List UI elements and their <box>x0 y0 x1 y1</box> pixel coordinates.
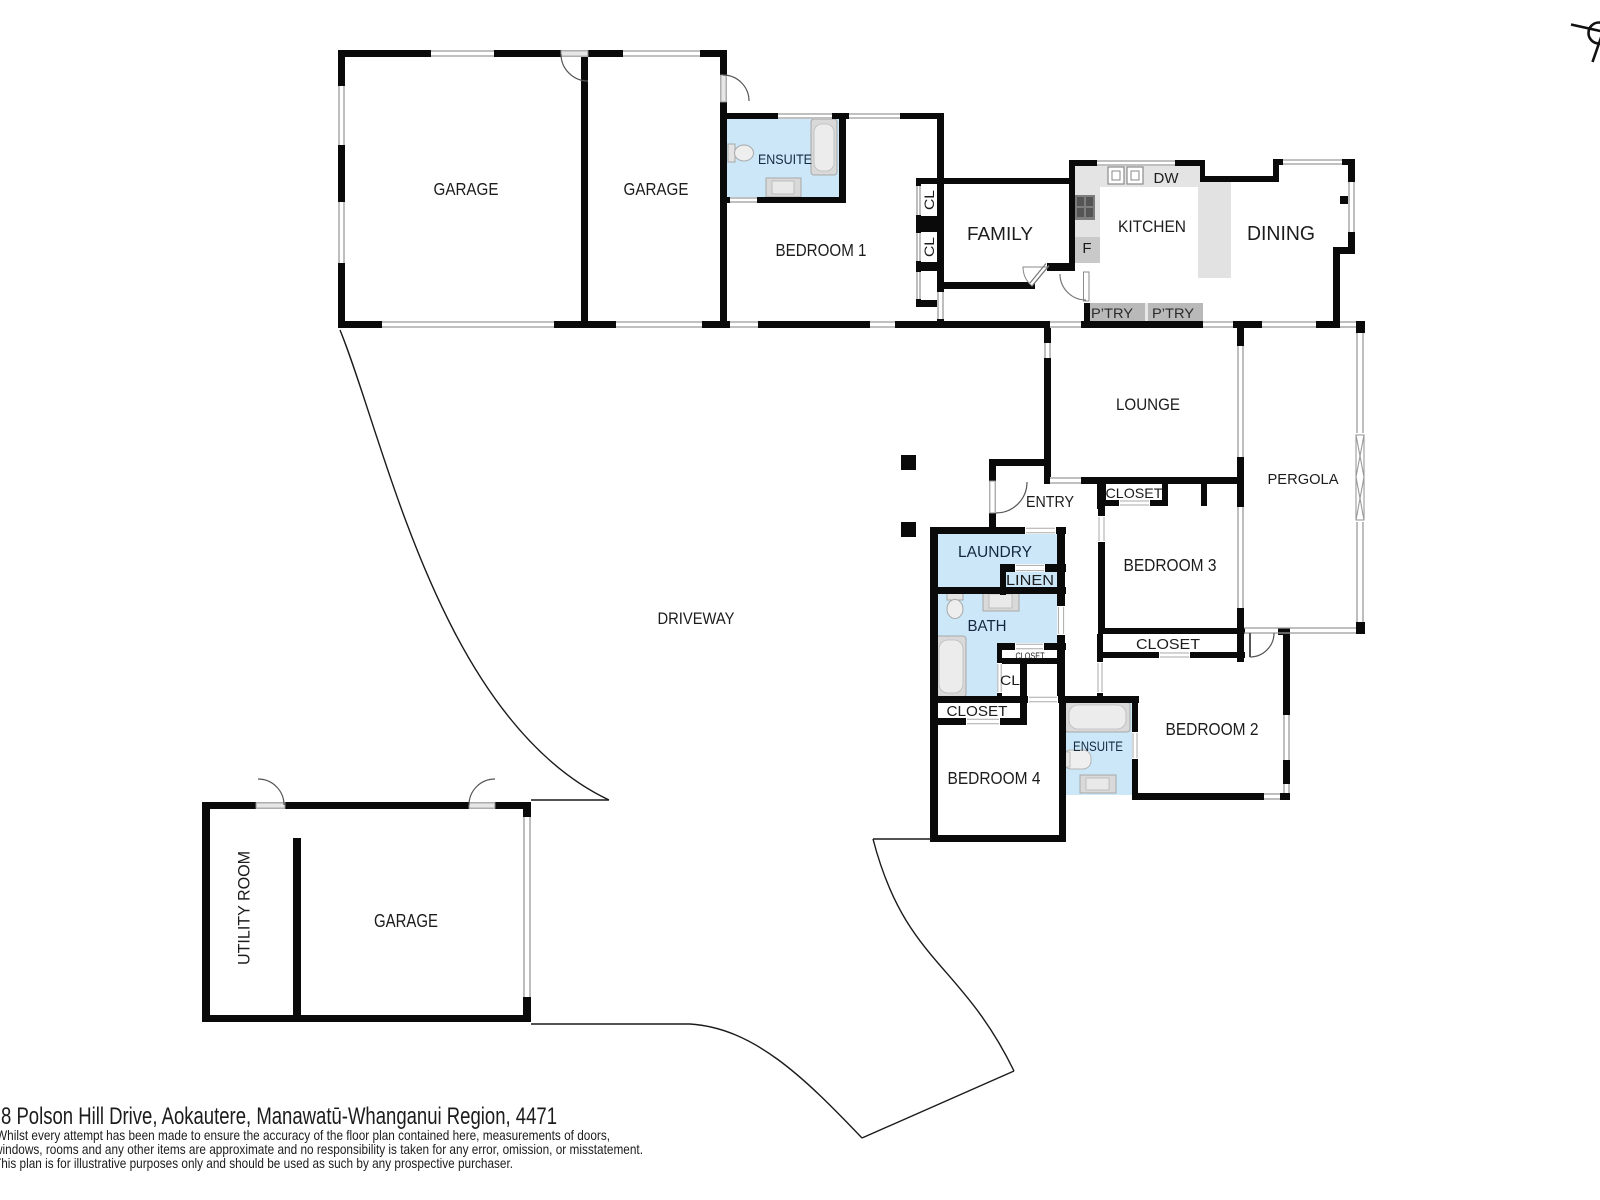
svg-text:GARAGE: GARAGE <box>624 179 689 199</box>
svg-text:BEDROOM 2: BEDROOM 2 <box>1166 719 1259 739</box>
svg-text:ENTRY: ENTRY <box>1026 494 1074 511</box>
svg-text:ENSUITE: ENSUITE <box>758 152 812 167</box>
svg-text:PERGOLA: PERGOLA <box>1268 471 1339 488</box>
svg-text:This plan is for illustrative: This plan is for illustrative purposes o… <box>0 1155 513 1171</box>
svg-text:P’TRY: P’TRY <box>1091 305 1134 321</box>
svg-text:BEDROOM 3: BEDROOM 3 <box>1124 555 1217 575</box>
svg-text:8 Polson Hill Drive, Aokautere: 8 Polson Hill Drive, Aokautere, Manawatū… <box>1 1103 557 1130</box>
svg-text:DW: DW <box>1154 170 1180 187</box>
svg-text:BEDROOM 1: BEDROOM 1 <box>776 240 867 260</box>
svg-text:CLOSET: CLOSET <box>947 703 1008 720</box>
svg-text:CL: CL <box>921 190 937 210</box>
svg-text:BEDROOM 4: BEDROOM 4 <box>948 768 1041 788</box>
svg-text:DRIVEWAY: DRIVEWAY <box>658 609 735 628</box>
svg-text:GARAGE: GARAGE <box>434 179 499 199</box>
svg-text:CL: CL <box>1000 672 1020 688</box>
svg-text:DINING: DINING <box>1247 223 1315 245</box>
svg-text:CL: CL <box>921 237 937 257</box>
svg-text:LOUNGE: LOUNGE <box>1116 395 1180 414</box>
svg-text:ENSUITE: ENSUITE <box>1073 738 1123 754</box>
svg-text:KITCHEN: KITCHEN <box>1118 217 1186 236</box>
svg-text:F: F <box>1082 240 1091 257</box>
svg-text:LINEN: LINEN <box>1006 572 1054 589</box>
svg-text:UTILITY ROOM: UTILITY ROOM <box>235 851 254 965</box>
svg-text:P’TRY: P’TRY <box>1152 305 1195 321</box>
svg-text:GARAGE: GARAGE <box>374 911 438 931</box>
svg-text:BATH: BATH <box>968 618 1007 635</box>
svg-text:LAUNDRY: LAUNDRY <box>958 544 1032 561</box>
svg-text:CLOSET: CLOSET <box>1136 636 1200 653</box>
svg-text:CLOSET: CLOSET <box>1106 485 1163 501</box>
svg-text:CLOSET: CLOSET <box>1016 651 1045 661</box>
svg-text:FAMILY: FAMILY <box>967 224 1033 244</box>
